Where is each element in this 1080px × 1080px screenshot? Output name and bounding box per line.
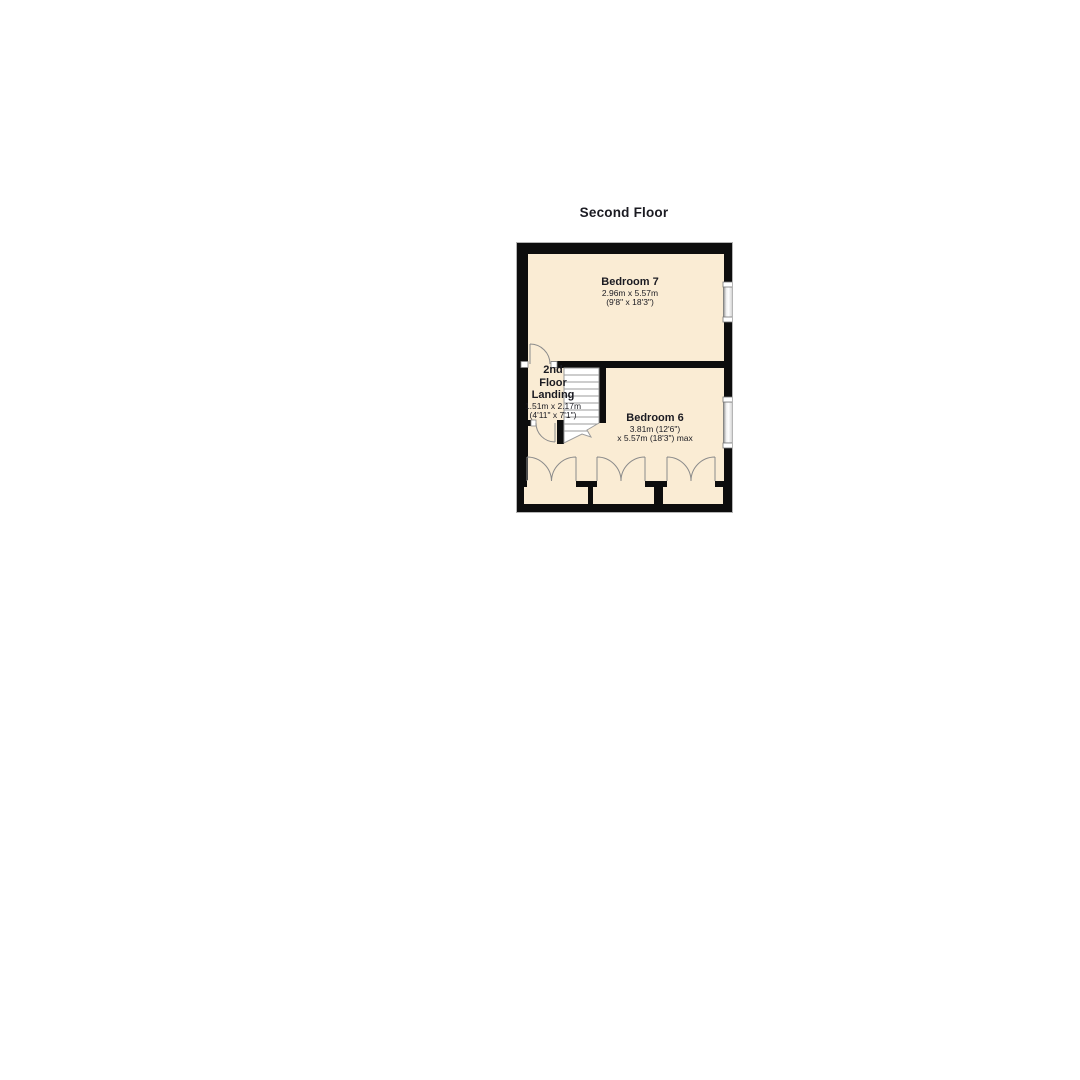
dormer-opening bbox=[527, 480, 576, 489]
dormer-bay bbox=[524, 487, 588, 504]
dormer-bay bbox=[663, 487, 723, 504]
room-dimensions-imperial: (9'8" x 18'3") bbox=[578, 298, 682, 308]
room-dimensions-line2: x 5.57m (18'3") max bbox=[603, 434, 707, 444]
bedroom7-window bbox=[723, 282, 733, 322]
bedroom6-label: Bedroom 6 3.81m (12'6") x 5.57m (18'3") … bbox=[603, 412, 707, 444]
room-name: Bedroom 6 bbox=[603, 412, 707, 425]
landing-bottom-wall bbox=[528, 420, 531, 426]
room-name-line: Landing bbox=[523, 389, 583, 402]
bedroom6-window bbox=[723, 397, 733, 448]
room-dimensions-imperial: (4'11" x 7'1") bbox=[523, 411, 583, 421]
dormer-opening bbox=[597, 480, 645, 489]
page-root: Second Floor bbox=[0, 0, 1080, 1080]
dormer-opening bbox=[667, 480, 715, 489]
floor-plan-title: Second Floor bbox=[504, 205, 744, 220]
jamb-marker bbox=[531, 420, 536, 426]
dormer-bay bbox=[593, 487, 654, 504]
room-name: Bedroom 7 bbox=[578, 276, 682, 289]
dormer-bays bbox=[524, 480, 723, 504]
room-name-line: 2nd bbox=[523, 364, 583, 377]
floor-plan: Bedroom 7 2.96m x 5.57m (9'8" x 18'3") 2… bbox=[516, 242, 733, 513]
bedroom7-label: Bedroom 7 2.96m x 5.57m (9'8" x 18'3") bbox=[578, 276, 682, 308]
room-name-line: Floor bbox=[523, 377, 583, 390]
landing-label: 2nd Floor Landing 1.51m x 2.17m (4'11" x… bbox=[523, 364, 583, 421]
stair-side-wall bbox=[557, 420, 564, 444]
